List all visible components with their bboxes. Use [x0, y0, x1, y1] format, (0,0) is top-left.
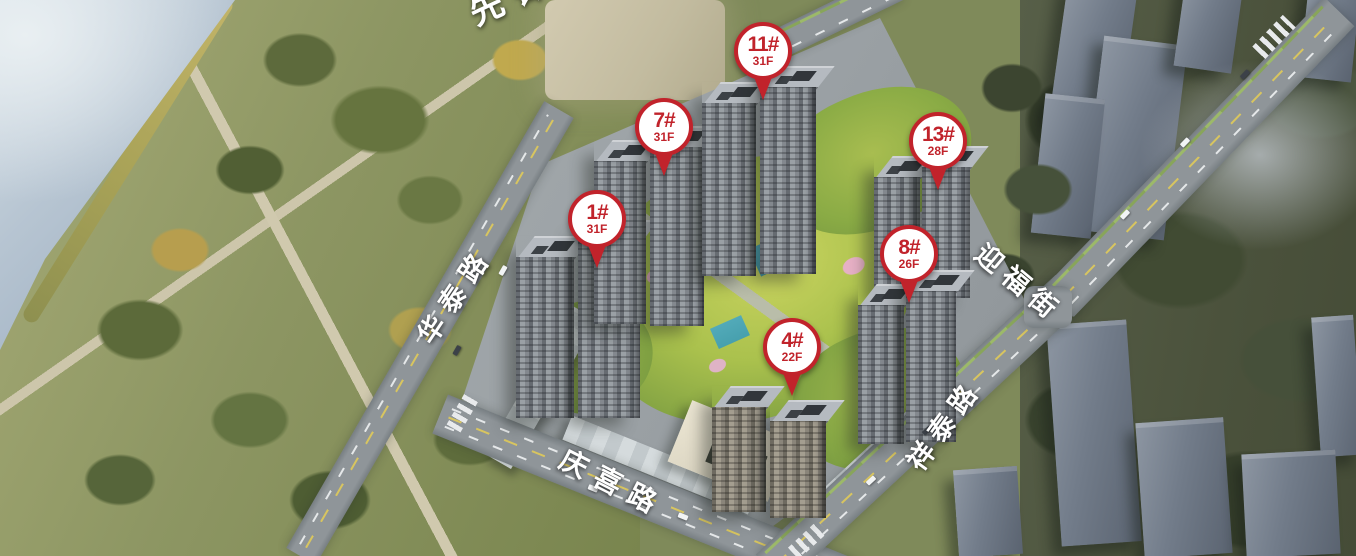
tower-4b [770, 400, 826, 518]
pin-head: 8# 26F [880, 225, 938, 283]
building-floors: 31F [587, 223, 608, 236]
pin-head: 11# 31F [734, 22, 792, 80]
building-number: 4# [781, 330, 802, 351]
pin-head: 1# 31F [568, 190, 626, 248]
building-pin-7[interactable]: 7# 31F [635, 98, 693, 178]
tower-facade [702, 103, 756, 276]
tower-facade [760, 87, 816, 274]
city-building [953, 466, 1023, 556]
tower-8a [858, 284, 904, 444]
building-pin-4[interactable]: 4# 22F [763, 318, 821, 398]
building-pin-8[interactable]: 8# 26F [880, 225, 938, 305]
aerial-site-map: 先锋创意 华泰路 迎福街 庆喜路 祥泰路 11# 31F 7# 31F 13# … [0, 0, 1356, 556]
tower-1a [516, 236, 574, 418]
building-number: 1# [586, 202, 607, 223]
tower-facade [770, 421, 826, 518]
pin-head: 7# 31F [635, 98, 693, 156]
building-pin-1[interactable]: 1# 31F [568, 190, 626, 270]
pin-head: 13# 28F [909, 112, 967, 170]
building-floors: 31F [753, 55, 774, 68]
tower-4a [712, 386, 766, 512]
tower-11a [702, 82, 756, 276]
building-floors: 31F [654, 131, 675, 144]
tower-facade [712, 407, 766, 512]
city-building [1311, 315, 1356, 458]
building-floors: 26F [899, 258, 920, 271]
building-number: 7# [653, 110, 674, 131]
building-floors: 22F [782, 351, 803, 364]
building-floors: 28F [928, 145, 949, 158]
city-building [1241, 450, 1340, 556]
building-number: 8# [898, 237, 919, 258]
building-pin-13[interactable]: 13# 28F [909, 112, 967, 192]
building-number: 11# [748, 34, 779, 55]
tower-facade [858, 305, 904, 444]
park-plaza [545, 0, 725, 100]
city-building [1135, 417, 1232, 556]
pin-head: 4# 22F [763, 318, 821, 376]
building-number: 13# [922, 124, 954, 145]
building-pin-11[interactable]: 11# 31F [734, 22, 792, 102]
tower-facade [516, 257, 574, 418]
city-building [1046, 319, 1141, 546]
